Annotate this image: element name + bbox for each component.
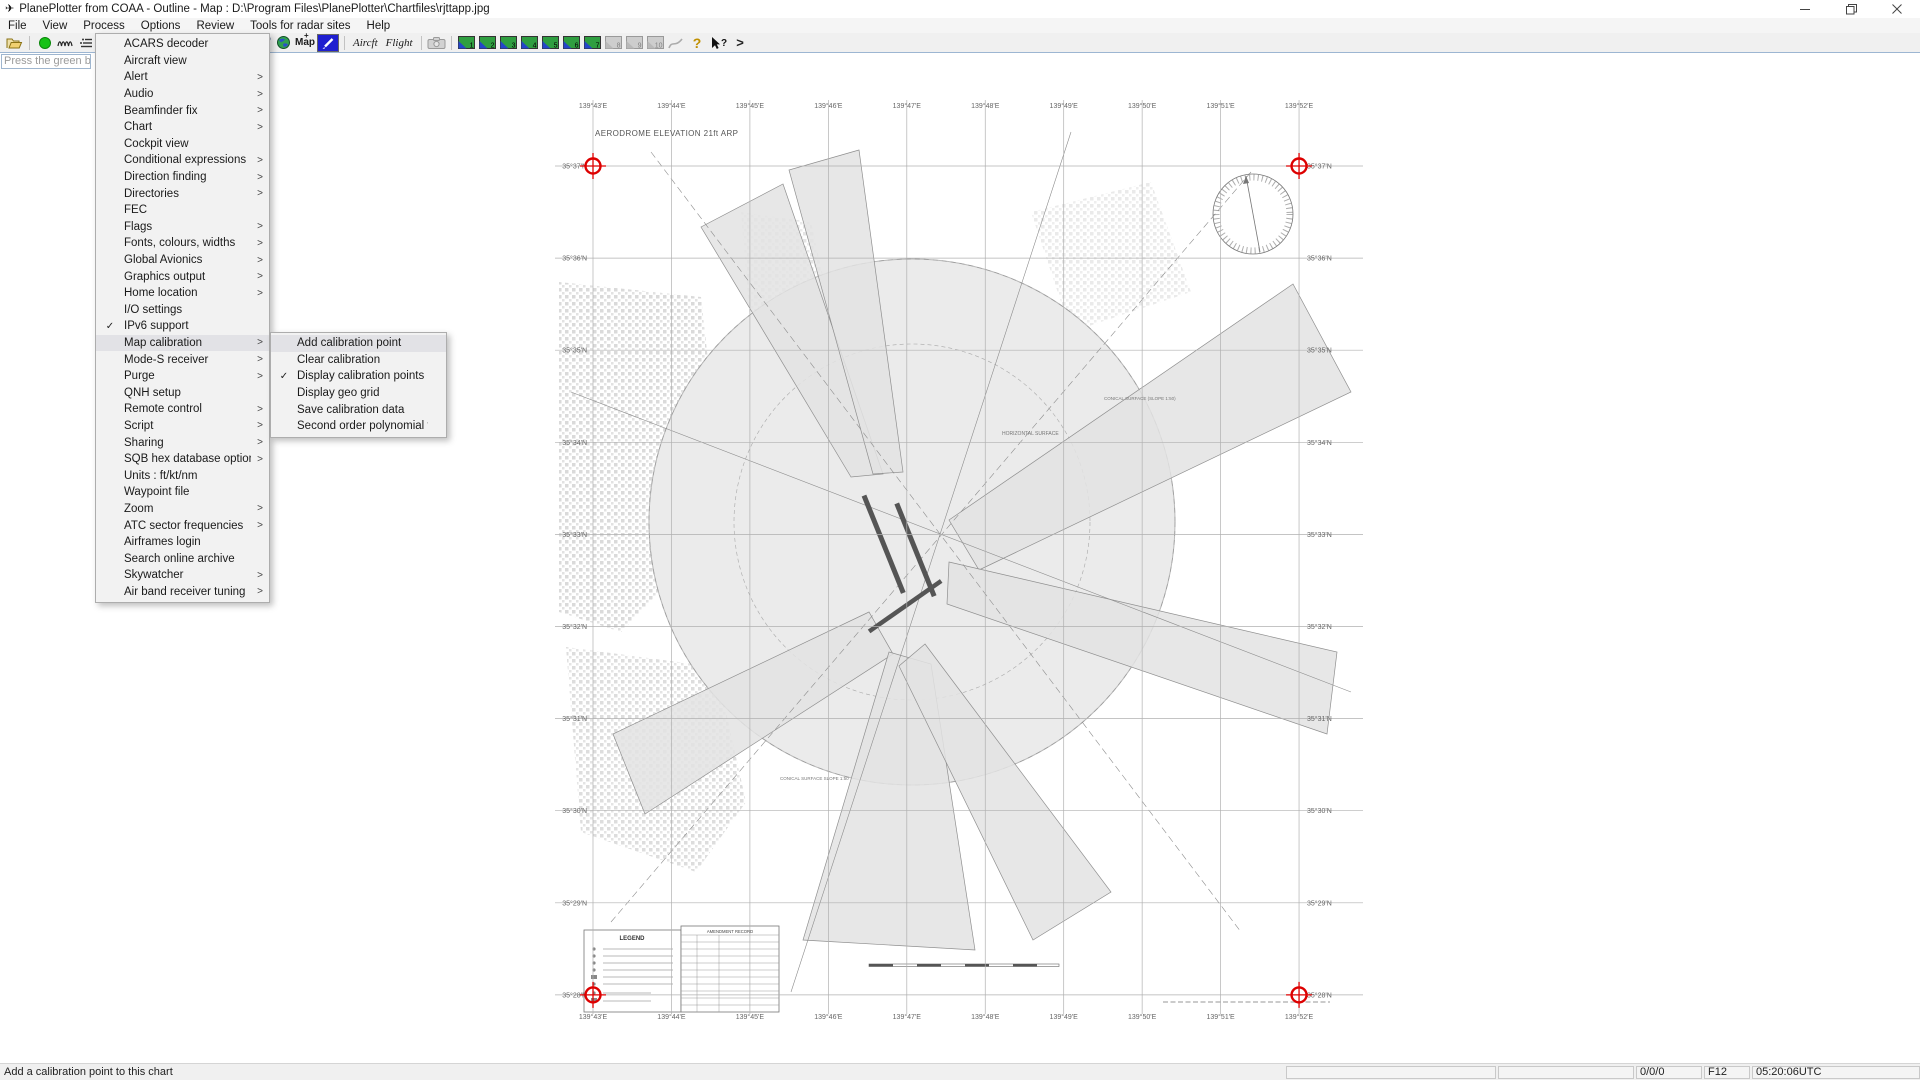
submenu-arrow-icon: > [251,520,269,531]
menu-item-i-o-settings[interactable]: I/O settings [96,302,269,319]
menu-item-label: ACARS decoder [124,38,251,50]
menu-item-units-ft-kt-nm[interactable]: Units : ft/kt/nm [96,467,269,484]
svg-text:139°44'E: 139°44'E [657,1013,686,1021]
status-key: F12 [1704,1066,1750,1079]
svg-text:CONICAL SURFACE (SLOPE 1:50): CONICAL SURFACE (SLOPE 1:50) [1104,396,1176,401]
menu-item-label: Script [124,420,251,432]
svg-text:?: ? [721,38,727,49]
chart-surfaces: LEGEND AMENDMENT RECORD [559,132,1351,1012]
menu-item-label: Units : ft/kt/nm [124,470,251,482]
submenu-arrow-icon: > [251,238,269,249]
map-plus-icon: + [304,31,309,40]
menu-item-qnh-setup[interactable]: QNH setup [96,384,269,401]
help-icon[interactable]: ? [688,34,707,52]
menu-item-label: Waypoint file [124,486,251,498]
svg-text:35°32'N: 35°32'N [1307,623,1332,631]
svg-text:6: 6 [574,43,578,50]
menu-item-waypoint-file[interactable]: Waypoint file [96,484,269,501]
svg-text:139°47'E: 139°47'E [893,1013,922,1021]
menu-item-label: Display geo grid [297,387,428,399]
chart-buttons-group: 12345678910 [456,34,666,52]
context-help-icon[interactable]: ? [709,34,729,52]
menu-item-directories[interactable]: Directories> [96,185,269,202]
submenu-arrow-icon: > [251,437,269,448]
svg-text:2: 2 [490,43,494,50]
svg-text:LEGEND: LEGEND [619,936,645,942]
menu-item-flags[interactable]: Flags> [96,219,269,236]
svg-text:35°30'N: 35°30'N [1307,807,1332,815]
aircft-button[interactable]: Aircft [350,34,381,52]
chart-button-5[interactable]: 5 [541,34,560,52]
menu-item-atc-sector-frequencies[interactable]: ATC sector frequencies> [96,517,269,534]
menu-item-direction-finding[interactable]: Direction finding> [96,169,269,186]
svg-text:139°50'E: 139°50'E [1128,102,1157,110]
menu-item-label: Mode-S receiver [124,354,251,366]
submenu-arrow-icon: > [251,337,269,348]
svg-text:35°31'N: 35°31'N [1307,715,1332,723]
chart-button-1[interactable]: 1 [457,34,476,52]
chart-button-7[interactable]: 7 [583,34,602,52]
camera-button[interactable] [427,34,446,52]
menu-item-label: Skywatcher [124,569,251,581]
svg-text:35°29'N: 35°29'N [1307,899,1332,907]
menu-item-label: Remote control [124,403,251,415]
menu-item-label: Purge [124,370,251,382]
submenu-arrow-icon: > [251,105,269,116]
minimize-button[interactable] [1782,0,1828,18]
svg-text:10: 10 [654,43,662,50]
svg-text:139°48'E: 139°48'E [971,102,1000,110]
submenu-arrow-icon: > [251,420,269,431]
menu-item-label: IPv6 support [124,320,251,332]
menu-item-label: Airframes login [124,536,251,548]
status-pane-2 [1498,1066,1634,1079]
submenu-arrow-icon: > [251,354,269,365]
submenu-arrow-icon: > [251,89,269,100]
menu-item-label: Clear calibration [297,354,428,366]
svg-text:139°47'E: 139°47'E [893,102,922,110]
compass-rose-icon [1213,174,1293,254]
amendment-record-table: AMENDMENT RECORD [681,926,779,1012]
menu-item-label: QNH setup [124,387,251,399]
menu-item-cockpit-view[interactable]: Cockpit view [96,136,269,153]
menu-item-alert[interactable]: Alert> [96,69,269,86]
svg-text:HORIZONTAL SURFACE: HORIZONTAL SURFACE [1002,431,1059,437]
svg-text:139°43'E: 139°43'E [579,1013,608,1021]
menu-item-remote-control[interactable]: Remote control> [96,401,269,418]
menu-item-label: Air band receiver tuning [124,586,251,598]
chart-button-6[interactable]: 6 [562,34,581,52]
menu-item-second-order-polynomial-fit[interactable]: Second order polynomial fit [271,418,446,435]
status-pane-1 [1286,1066,1496,1079]
submenu-arrow-icon: > [251,188,269,199]
menu-item-label: Map calibration [124,337,251,349]
checkmark-icon: ✓ [271,371,297,382]
menu-item-sqb-hex-database-options[interactable]: SQB hex database options> [96,451,269,468]
menu-item-aircraft-view[interactable]: Aircraft view [96,53,269,70]
chart-button-3[interactable]: 3 [499,34,518,52]
svg-text:139°52'E: 139°52'E [1285,1013,1314,1021]
menu-item-zoom[interactable]: Zoom> [96,501,269,518]
menu-item-label: Zoom [124,503,251,515]
svg-text:35°34'N: 35°34'N [562,439,587,447]
svg-text:35°34'N: 35°34'N [1307,439,1332,447]
toolbar-separator [344,36,345,50]
svg-text:139°44'E: 139°44'E [657,102,686,110]
aerodrome-chart[interactable]: LEGEND AMENDMENT RECORD [551,92,1368,1022]
submenu-arrow-icon: > [251,371,269,382]
menu-item-label: Second order polynomial fit [297,420,428,432]
svg-text:1: 1 [469,43,473,50]
svg-text:139°45'E: 139°45'E [736,102,765,110]
menu-item-search-online-archive[interactable]: Search online archive [96,550,269,567]
menu-item-save-calibration-data[interactable]: Save calibration data [271,401,446,418]
calibration-marker [1286,153,1312,179]
status-message: Add a calibration point to this chart [0,1066,1286,1078]
svg-text:35°36'N: 35°36'N [1307,255,1332,263]
submenu-arrow-icon: > [251,503,269,514]
menu-item-skywatcher[interactable]: Skywatcher> [96,567,269,584]
menu-file[interactable]: File [0,18,35,33]
chart-button-10[interactable]: 10 [646,34,665,52]
menu-item-mode-s-receiver[interactable]: Mode-S receiver> [96,351,269,368]
menu-item-label: Display calibration points [297,370,428,382]
menu-item-acars-decoder[interactable]: ACARS decoder [96,36,269,53]
map-calibration-submenu: Add calibration pointClear calibration✓D… [270,332,447,438]
submenu-arrow-icon: > [251,122,269,133]
menu-item-label: Search online archive [124,553,251,565]
menu-item-label: Audio [124,88,251,100]
menu-item-air-band-receiver-tuning[interactable]: Air band receiver tuning> [96,584,269,601]
scale-bar [869,964,1059,967]
menu-tools-for-radar-sites[interactable]: Tools for radar sites [242,18,358,33]
menu-item-label: SQB hex database options [124,453,251,465]
svg-text:9: 9 [637,43,641,50]
svg-text:139°50'E: 139°50'E [1128,1013,1157,1021]
svg-text:AERODROME ELEVATION 21ft ARP: AERODROME ELEVATION 21ft ARP [595,129,738,138]
svg-text:35°35'N: 35°35'N [562,347,587,355]
menu-item-label: Fonts, colours, widths [124,237,251,249]
signal-trace-icon[interactable] [56,34,75,52]
menu-item-ipv6-support[interactable]: ✓IPv6 support [96,318,269,335]
menu-bar: FileViewProcessOptionsReviewTools for ra… [0,18,1920,33]
svg-text:35°31'N: 35°31'N [562,715,587,723]
menu-item-home-location[interactable]: Home location> [96,285,269,302]
svg-text:139°48'E: 139°48'E [971,1013,1000,1021]
menu-process[interactable]: Process [75,18,133,33]
restore-button[interactable] [1828,0,1874,18]
menu-item-script[interactable]: Script> [96,418,269,435]
window-title: PlanePlotter from COAA - Outline - Map :… [19,3,489,15]
plane-app-icon: ✈ [5,4,14,15]
draw-disabled-icon[interactable] [667,34,686,52]
svg-text:35°30'N: 35°30'N [562,807,587,815]
menu-item-label: Graphics output [124,271,251,283]
submenu-arrow-icon: > [251,72,269,83]
svg-text:8: 8 [616,43,620,50]
menu-item-display-calibration-points[interactable]: ✓Display calibration points [271,368,446,385]
submenu-arrow-icon: > [251,454,269,465]
draw-pencil-button[interactable] [317,34,339,52]
submenu-arrow-icon: > [251,404,269,415]
svg-text:35°36'N: 35°36'N [562,255,587,263]
svg-text:35°29'N: 35°29'N [562,899,587,907]
svg-text:4: 4 [532,43,536,50]
svg-text:139°51'E: 139°51'E [1206,102,1235,110]
svg-text:139°51'E: 139°51'E [1206,1013,1235,1021]
menu-item-label: Direction finding [124,171,251,183]
submenu-arrow-icon: > [251,271,269,282]
svg-text:7: 7 [595,43,599,50]
svg-text:5: 5 [553,43,557,50]
calibration-marker [580,153,606,179]
close-button[interactable] [1874,0,1920,18]
flight-button[interactable]: Flight [383,34,416,52]
submenu-arrow-icon: > [251,172,269,183]
chart-button-2[interactable]: 2 [478,34,497,52]
svg-text:139°45'E: 139°45'E [736,1013,765,1021]
more-tools-chevron[interactable]: > [731,34,750,52]
menu-item-airframes-login[interactable]: Airframes login [96,534,269,551]
menu-item-map-calibration[interactable]: Map calibration> [96,335,269,352]
toolbar-separator [29,36,30,50]
menu-help[interactable]: Help [359,18,399,33]
menu-item-display-geo-grid[interactable]: Display geo grid [271,385,446,402]
menu-review[interactable]: Review [188,18,242,33]
menu-item-label: I/O settings [124,304,251,316]
chart-button-4[interactable]: 4 [520,34,539,52]
menu-item-label: Conditional expressions [124,154,251,166]
menu-item-label: Cockpit view [124,138,251,150]
submenu-arrow-icon: > [251,255,269,266]
menu-item-fec[interactable]: FEC [96,202,269,219]
status-clock: 05:20:06UTC [1752,1066,1920,1079]
svg-text:139°46'E: 139°46'E [814,102,843,110]
svg-text:139°43'E: 139°43'E [579,102,608,110]
menu-item-purge[interactable]: Purge> [96,368,269,385]
toolbar-separator [451,36,452,50]
chart-button-8[interactable]: 8 [604,34,623,52]
svg-text:3: 3 [511,43,515,50]
chart-button-9[interactable]: 9 [625,34,644,52]
menu-item-label: Beamfinder fix [124,105,251,117]
svg-text:139°52'E: 139°52'E [1285,102,1314,110]
menu-item-label: FEC [124,204,251,216]
menu-item-label: Sharing [124,437,251,449]
record-icon[interactable] [35,34,54,52]
svg-text:139°49'E: 139°49'E [1050,1013,1079,1021]
menu-item-label: Add calibration point [297,337,428,349]
menu-item-beamfinder-fix[interactable]: Beamfinder fix> [96,102,269,119]
menu-item-global-avionics[interactable]: Global Avionics> [96,252,269,269]
toolbar: Map + Aircft Flight 12345678910 ? ? > [0,33,1920,53]
svg-text:139°46'E: 139°46'E [814,1013,843,1021]
menu-item-conditional-expressions[interactable]: Conditional expressions> [96,152,269,169]
open-file-icon[interactable] [5,34,24,52]
menu-item-label: Chart [124,121,251,133]
menu-item-graphics-output[interactable]: Graphics output> [96,268,269,285]
checkmark-icon: ✓ [96,321,124,332]
menu-item-label: Directories [124,188,251,200]
submenu-arrow-icon: > [251,288,269,299]
menu-item-label: Global Avionics [124,254,251,266]
signal-levels-icon[interactable] [77,34,96,52]
menu-item-clear-calibration[interactable]: Clear calibration [271,352,446,369]
svg-text:35°32'N: 35°32'N [562,623,587,631]
svg-text:35°33'N: 35°33'N [562,531,587,539]
menu-item-fonts-colours-widths[interactable]: Fonts, colours, widths> [96,235,269,252]
window-controls [1782,0,1920,18]
hint-input[interactable]: Press the green b [1,54,91,69]
options-menu: ACARS decoderAircraft viewAlert>Audio>Be… [95,33,270,603]
menu-view[interactable]: View [35,18,76,33]
calibration-marker [1286,982,1312,1008]
submenu-arrow-icon: > [251,221,269,232]
menu-item-label: Alert [124,71,251,83]
menu-options[interactable]: Options [133,18,189,33]
menu-item-chart[interactable]: Chart> [96,119,269,136]
menu-item-label: Aircraft view [124,55,251,67]
svg-text:CONICAL SURFACE SLOPE 1:50: CONICAL SURFACE SLOPE 1:50 [780,776,849,781]
submenu-arrow-icon: > [251,570,269,581]
title-bar: ✈ PlanePlotter from COAA - Outline - Map… [0,0,1920,18]
menu-item-label: Flags [124,221,251,233]
menu-item-label: Save calibration data [297,404,428,416]
status-bar: Add a calibration point to this chart 0/… [0,1063,1920,1080]
svg-text:35°33'N: 35°33'N [1307,531,1332,539]
status-counts: 0/0/0 [1636,1066,1702,1079]
menu-item-label: Home location [124,287,251,299]
svg-text:AMENDMENT RECORD: AMENDMENT RECORD [707,929,753,934]
submenu-arrow-icon: > [251,586,269,597]
menu-item-audio[interactable]: Audio> [96,86,269,103]
menu-item-label: ATC sector frequencies [124,520,251,532]
menu-item-add-calibration-point[interactable]: Add calibration point [271,335,446,352]
globe-icon[interactable] [274,34,293,52]
svg-text:139°49'E: 139°49'E [1050,102,1079,110]
svg-text:35°35'N: 35°35'N [1307,347,1332,355]
map-button[interactable]: Map + [295,34,315,52]
menu-item-sharing[interactable]: Sharing> [96,434,269,451]
submenu-arrow-icon: > [251,155,269,166]
toolbar-separator [421,36,422,50]
